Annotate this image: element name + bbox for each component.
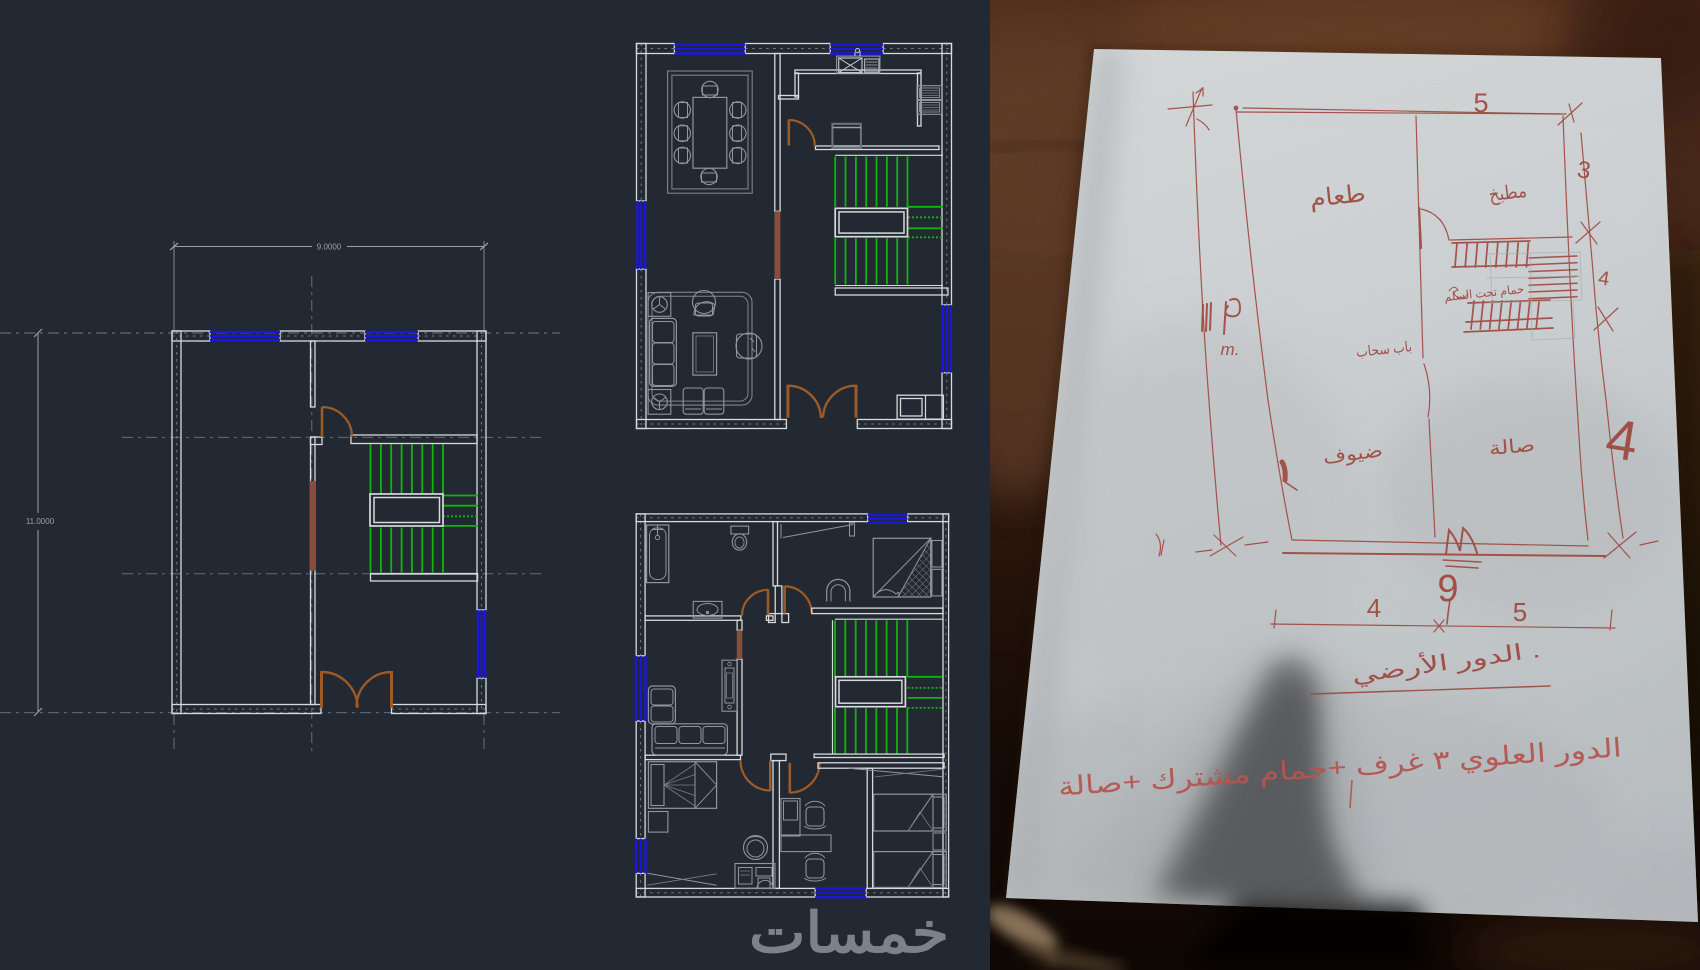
- svg-text:4: 4: [1367, 593, 1381, 623]
- svg-text:صالة: صالة: [1488, 435, 1536, 460]
- svg-text:9.0000: 9.0000: [317, 243, 342, 252]
- svg-text:5: 5: [1513, 597, 1527, 627]
- svg-text:خمسات: خمسات: [749, 901, 949, 964]
- svg-text:m.: m.: [1221, 340, 1240, 359]
- svg-text:11.0000: 11.0000: [26, 517, 55, 526]
- svg-text:9: 9: [1437, 568, 1458, 610]
